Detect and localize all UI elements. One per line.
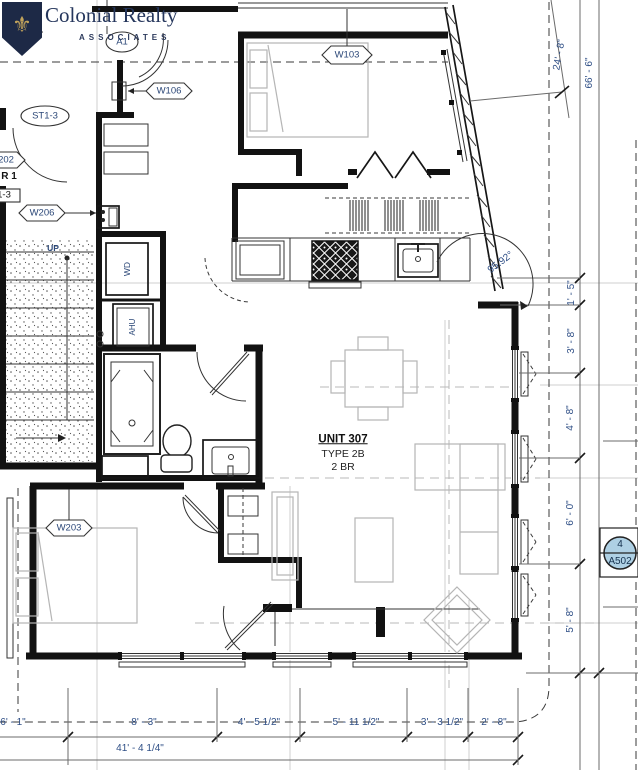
sofa-sectional xyxy=(415,444,505,574)
dim-4-5-half: 4' - 5 1/2" xyxy=(238,718,280,728)
section-marker-number: 4 xyxy=(617,540,623,550)
dim-5-11-half: 5' - 11 1/2" xyxy=(333,718,380,728)
bathtub xyxy=(104,354,160,454)
range xyxy=(312,241,358,280)
tag-a1: A1 xyxy=(116,37,128,47)
dim-6-0: 6' - 0" xyxy=(566,500,576,525)
floorplan-linework xyxy=(0,0,638,770)
unit-type: TYPE 2B xyxy=(321,449,364,460)
tag-w103: W103 xyxy=(335,50,360,60)
crest-icon: ⚜ xyxy=(12,14,32,36)
tag-w206: W206 xyxy=(30,208,55,218)
toilet xyxy=(163,425,191,457)
tag-w106: W106 xyxy=(157,86,182,96)
upper-cabinets xyxy=(350,200,438,231)
unit-number: UNIT 307 xyxy=(318,434,367,446)
dim-total-41-4: 41' - 4 1/4" xyxy=(116,744,164,754)
stair-label-partial: R 1 xyxy=(1,172,17,182)
dim-66-6: 66' - 6" xyxy=(585,57,595,88)
dim-3-3-half: 3' - 3 1/2" xyxy=(421,718,463,728)
bottom-wall-windows xyxy=(118,652,468,667)
dim-3-8: 3' - 8" xyxy=(567,328,577,353)
dim-2-8: 2' - 8" xyxy=(481,718,506,728)
tag-w203: W203 xyxy=(57,523,82,533)
stairs-up-label: UP xyxy=(47,244,59,253)
laundry-mechanical xyxy=(97,82,153,350)
angle-arc xyxy=(437,233,533,306)
ahu-label: AHU xyxy=(129,319,137,336)
floor-plan-sheet: ⚜ Colonial Realty ASSOCIATES A1 ST1-3 W1… xyxy=(0,0,638,770)
dim-5-8: 5' - 8" xyxy=(566,607,576,632)
unit-beds: 2 BR xyxy=(331,462,354,473)
dining-table xyxy=(331,337,417,420)
dim-8-3: 8' - 3" xyxy=(131,718,156,728)
tag-w202-partial: 202 xyxy=(0,155,14,165)
angled-window-wall xyxy=(441,5,503,291)
right-wall-windows xyxy=(511,346,536,622)
closet-shelves xyxy=(228,488,258,556)
dim-6-1: 6' - 1" xyxy=(0,718,25,728)
dim-1-5: 1' - 5" xyxy=(567,280,577,305)
washer-dryer-label: WD xyxy=(123,262,132,276)
coffee-table xyxy=(355,518,393,582)
stairs xyxy=(6,240,94,462)
area-rug xyxy=(424,587,490,653)
section-marker xyxy=(600,528,638,577)
bathroom xyxy=(102,354,260,478)
tag-st-partial: 1-3 xyxy=(0,190,11,200)
company-logo-name: Colonial Realty xyxy=(45,3,177,28)
wardrobe xyxy=(272,492,298,580)
section-marker-sheet: A502 xyxy=(608,557,631,567)
kitchen xyxy=(232,198,470,288)
tag-st1-3: ST1-3 xyxy=(32,111,58,121)
dim-4-8: 4' - 8" xyxy=(566,405,576,430)
